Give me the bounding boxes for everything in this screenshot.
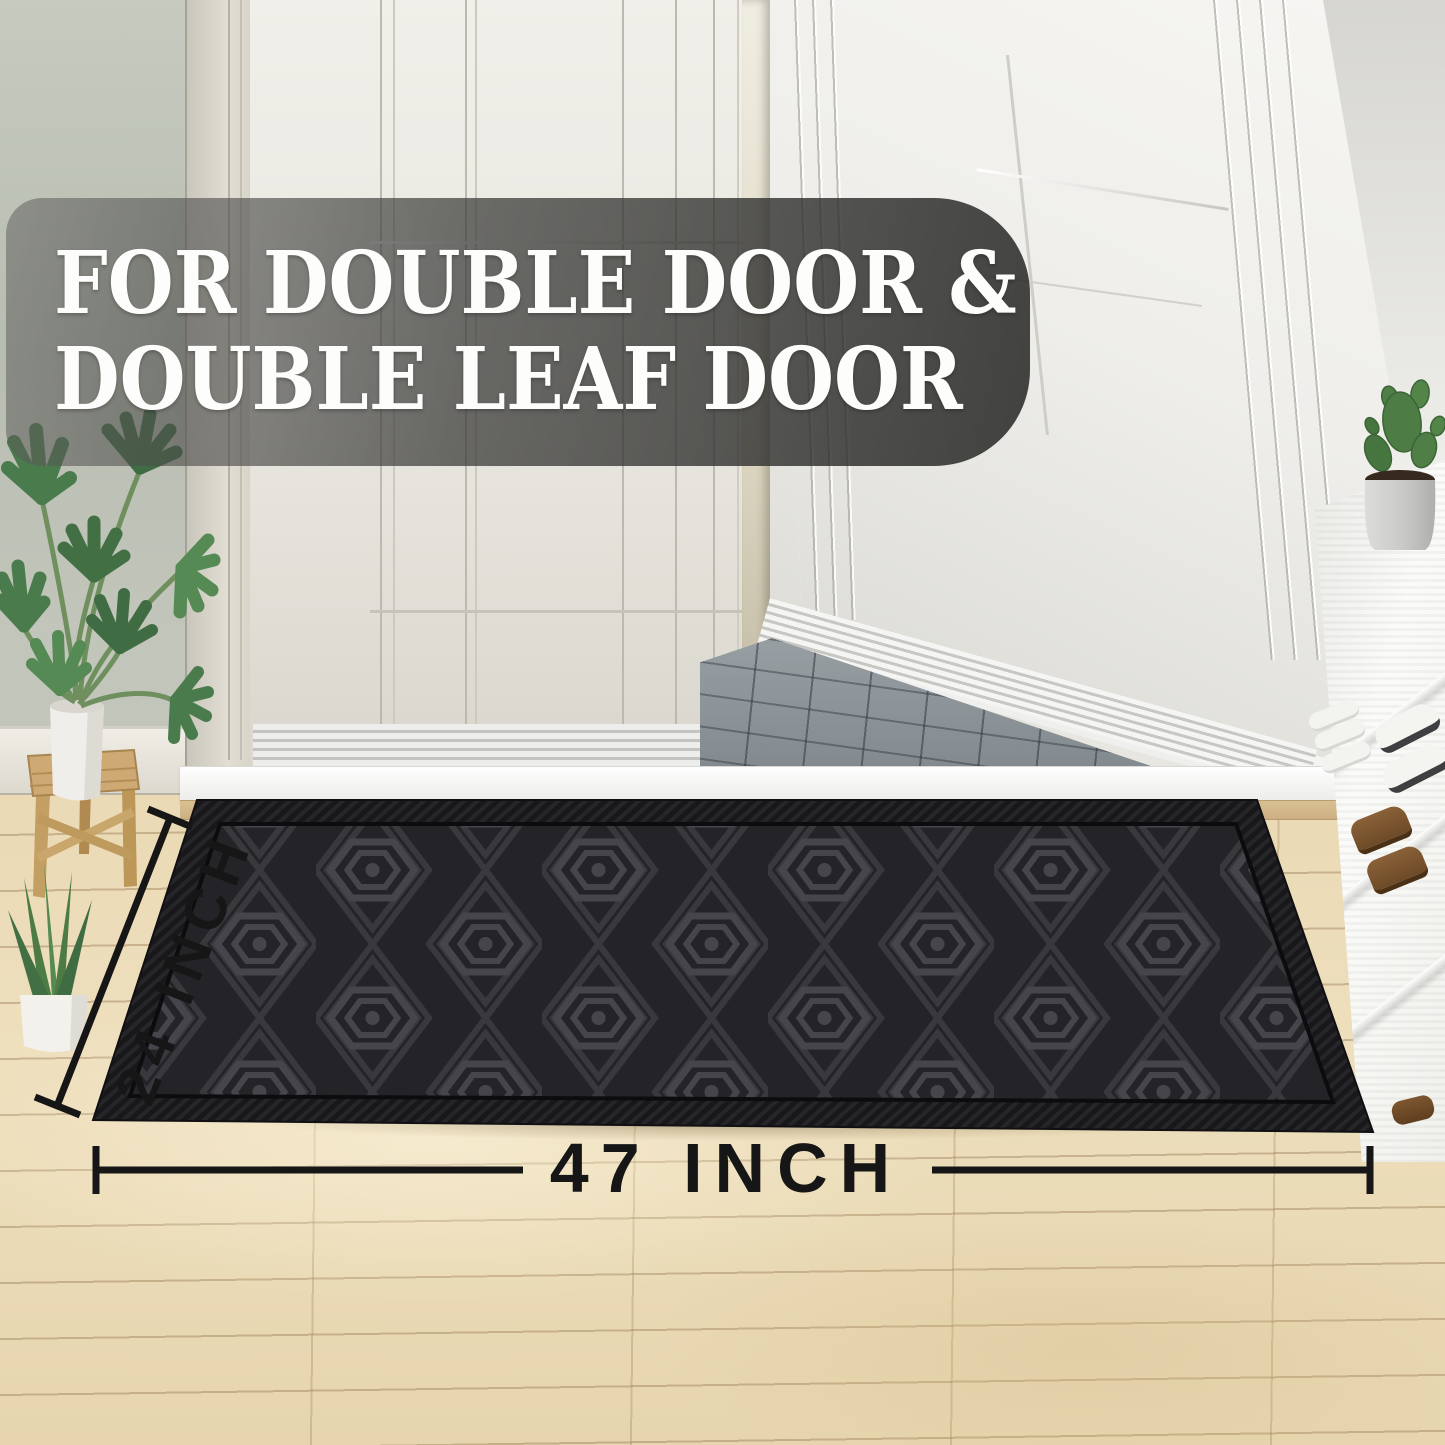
door-panel-groove [976, 168, 1228, 211]
door-panel-rail [370, 610, 742, 613]
aloe-plant [8, 862, 92, 1052]
banner-line-1: FOR DOUBLE DOOR & [54, 236, 913, 332]
monstera-pot [50, 699, 104, 801]
product-photo-scene: 24 INCH 47 INCH FOR DOUBLE DOOR & DOUBLE… [0, 0, 1445, 1445]
concrete-pot [1365, 480, 1436, 550]
cactus-plant [1359, 379, 1445, 475]
promo-banner: FOR DOUBLE DOOR & DOUBLE LEAF DOOR [6, 198, 1030, 466]
banner-line-2: DOUBLE LEAF DOOR [54, 332, 913, 428]
cactus-pot [1352, 350, 1445, 562]
door-mat [90, 796, 1390, 1141]
mat-carpet [130, 824, 1333, 1102]
